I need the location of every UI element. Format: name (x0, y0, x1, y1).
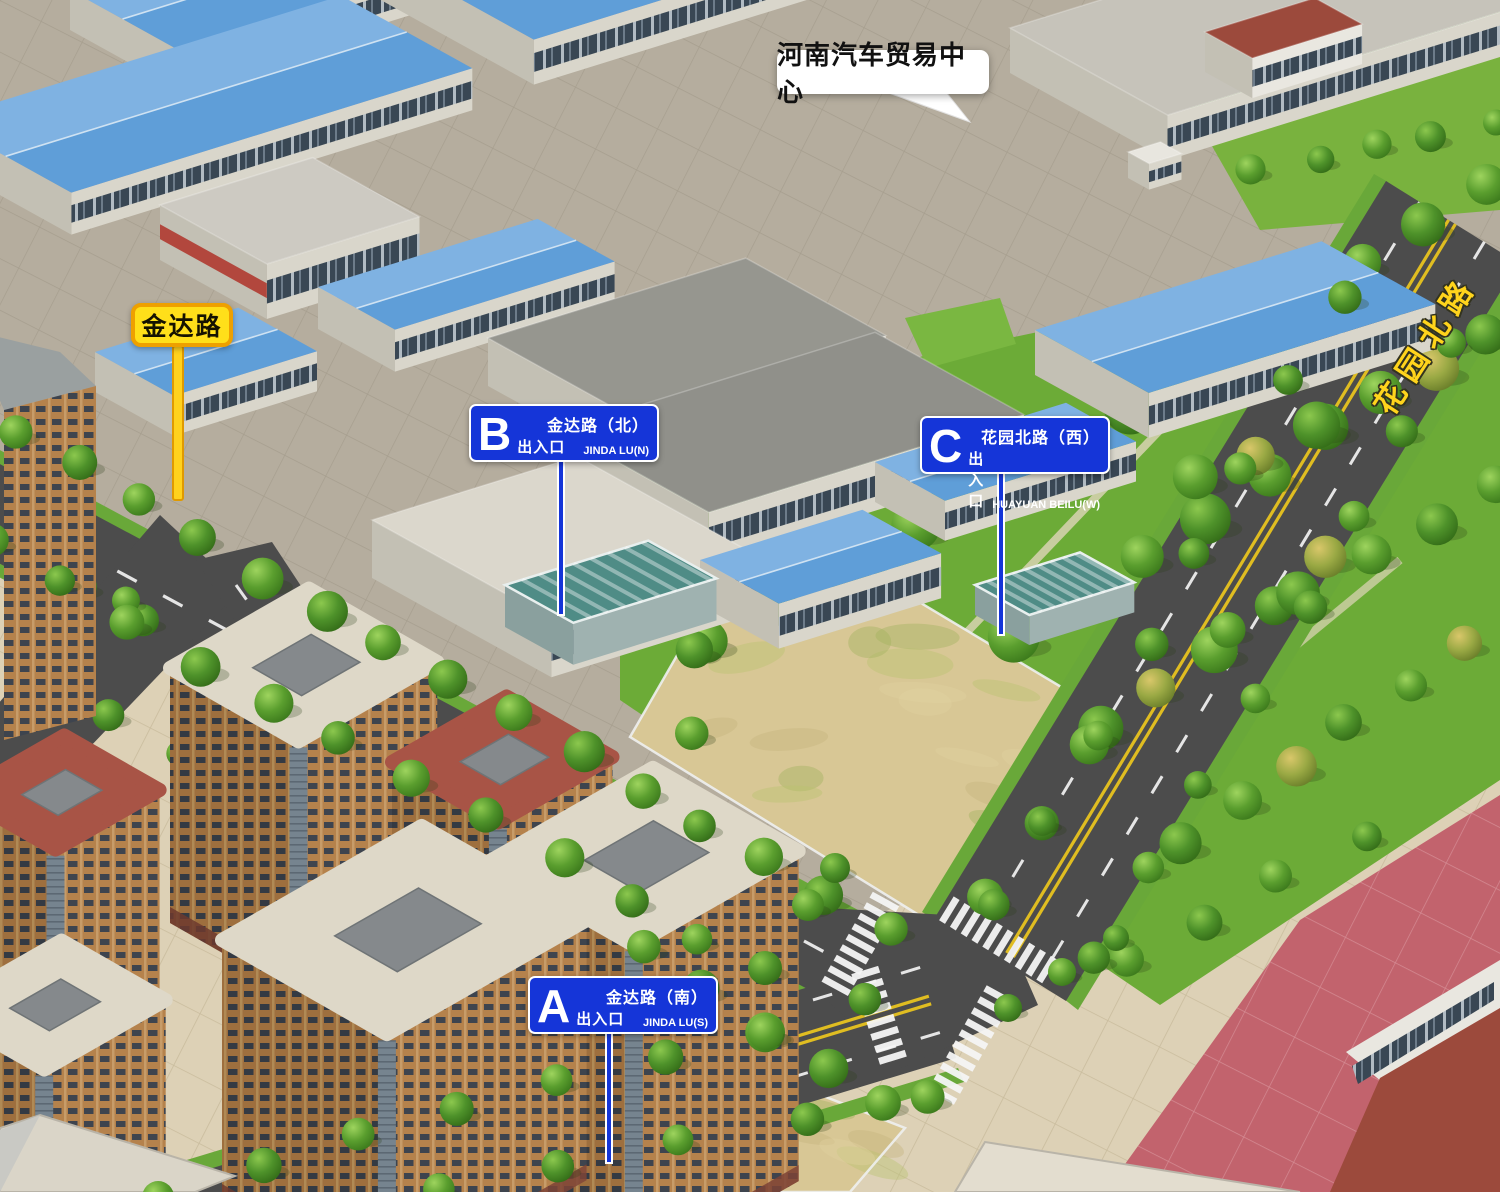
entrance-b-pole (557, 460, 565, 616)
center-name-bubble: 河南汽车贸易中心 (777, 50, 989, 94)
entrance-a-road-cn: 金达路（南） (576, 984, 708, 1008)
map-scene-svg (0, 0, 1500, 1192)
entrance-a-gate-label: 出入口 (576, 1008, 624, 1029)
entrance-b-gate-label: 出入口 (517, 436, 565, 457)
jinda-road-sign: 金达路 (131, 303, 233, 347)
entrance-c-gate-label: 出入口 (968, 448, 992, 511)
entrance-b-letter: B (478, 409, 511, 456)
entrance-b-sign: B 金达路（北） 出入口 JINDA LU(N) (469, 404, 659, 462)
entrance-b-road-en: JINDA LU(N) (583, 445, 649, 457)
entrance-a-body: 金达路（南） 出入口 JINDA LU(S) (576, 981, 708, 1028)
entrance-b-body: 金达路（北） 出入口 JINDA LU(N) (517, 409, 649, 456)
entrance-c-letter: C (929, 421, 962, 468)
entrance-c-sign: C 花园北路（西） 出入口 HUAYUAN BEILU(W) (920, 416, 1110, 474)
map-stage: 河南汽车贸易中心 金达路 B 金达路（北） 出入口 JINDA LU(N) C … (0, 0, 1500, 1192)
entrance-c-road-cn: 花园北路（西） (968, 424, 1100, 448)
entrance-a-letter: A (537, 981, 570, 1028)
jinda-road-sign-pole (172, 345, 184, 501)
entrance-b-road-cn: 金达路（北） (517, 412, 649, 436)
entrance-a-pole (605, 1032, 613, 1164)
entrance-a-sign: A 金达路（南） 出入口 JINDA LU(S) (528, 976, 718, 1034)
entrance-a-road-en: JINDA LU(S) (643, 1017, 708, 1029)
entrance-c-road-en: HUAYUAN BEILU(W) (992, 499, 1100, 511)
entrance-c-body: 花园北路（西） 出入口 HUAYUAN BEILU(W) (968, 421, 1100, 468)
